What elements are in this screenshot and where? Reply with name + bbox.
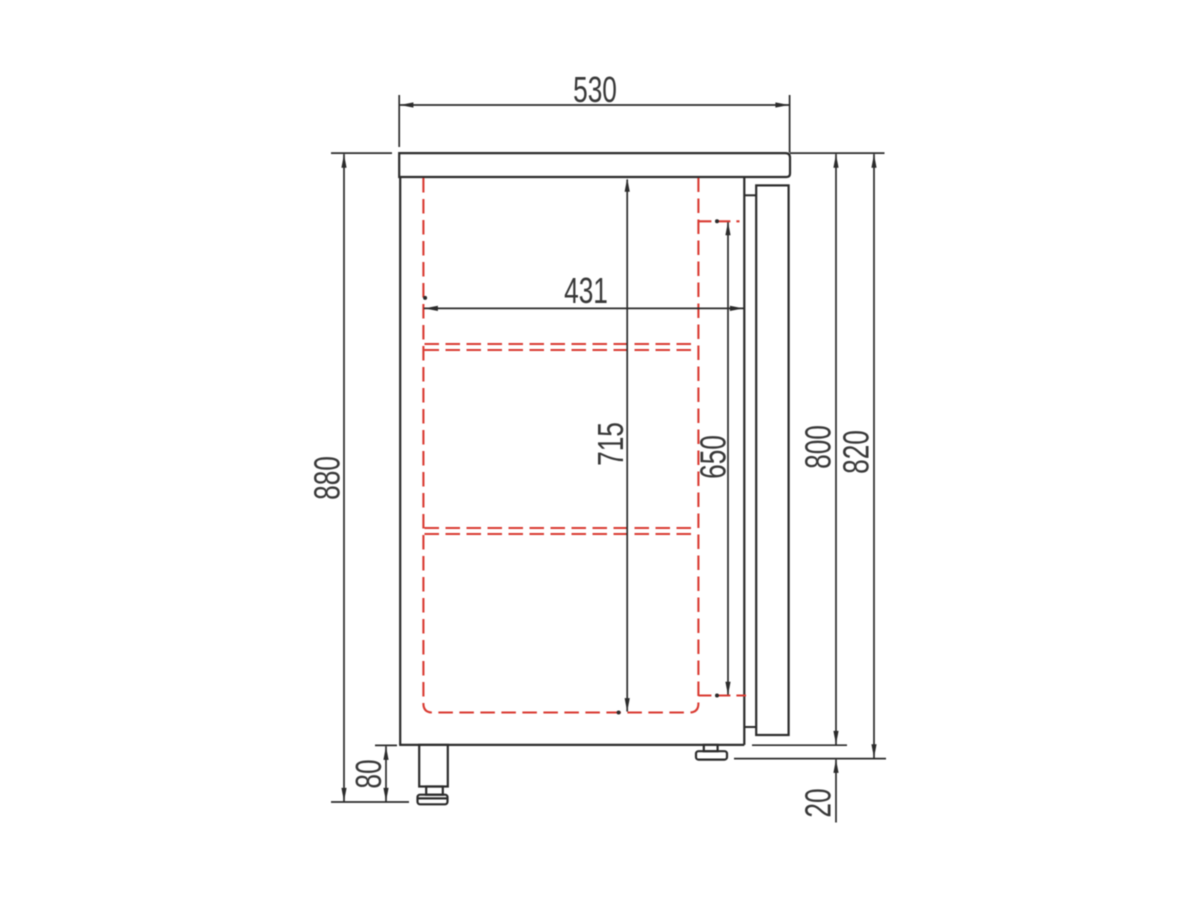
svg-text:530: 530 — [573, 69, 617, 110]
svg-text:80: 80 — [348, 759, 389, 788]
svg-text:715: 715 — [590, 422, 631, 466]
svg-text:650: 650 — [692, 435, 733, 479]
svg-text:431: 431 — [564, 270, 608, 311]
svg-text:820: 820 — [835, 430, 876, 474]
svg-text:800: 800 — [797, 425, 838, 469]
svg-text:880: 880 — [306, 456, 347, 500]
svg-text:20: 20 — [797, 788, 838, 817]
